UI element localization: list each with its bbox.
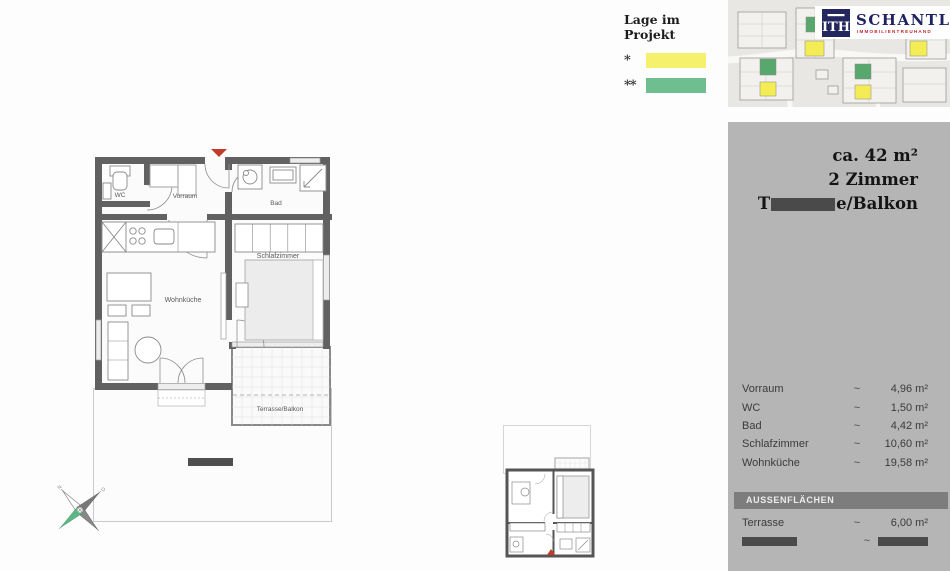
approx-sign: ~	[848, 457, 866, 469]
garden-door-steps	[158, 390, 205, 406]
room-label: Bad	[742, 420, 848, 432]
green-unit-2	[760, 59, 776, 75]
apartment-area-total: ca. 42 m²	[758, 144, 918, 168]
logo-monogram-bar	[828, 14, 845, 16]
round-table	[135, 337, 161, 363]
main-floor-plan: Terrasse/Balkon	[80, 145, 340, 530]
bathroom-sink-basin	[273, 170, 293, 180]
mini-bed-headboard	[557, 476, 563, 518]
table-row: Bad ~ 4,42 m²	[728, 417, 950, 435]
apartment-outdoor-title: T e/Balkon	[758, 192, 918, 216]
room-value: 10,60 m²	[866, 438, 928, 450]
entrance-arrow-icon	[211, 149, 227, 157]
room-value: 1,50 m²	[866, 402, 928, 414]
mini-wardrobe-row	[557, 523, 590, 532]
brand-name: SCHANTL	[856, 11, 950, 29]
bathroom-label: Bad	[270, 200, 282, 207]
yellow-unit-4	[855, 85, 871, 99]
room-label: Terrasse	[742, 517, 848, 529]
nightstand	[236, 283, 248, 307]
hallway-label: Vorraum	[173, 193, 198, 200]
bedroom-wardrobe	[235, 224, 323, 252]
yellow-unit-3	[760, 82, 776, 96]
wc-label: WC	[115, 192, 126, 199]
table-row: WC ~ 1,50 m²	[728, 398, 950, 416]
redacted-plan-caption	[188, 458, 233, 466]
redaction-block	[771, 198, 835, 211]
approx-sign: ~	[848, 420, 866, 432]
legend-item-double-star: **	[624, 78, 728, 93]
wc-sink	[103, 183, 111, 199]
legend-star-mark: *	[624, 53, 646, 68]
outdoor-title-suffix: e/Balkon	[836, 192, 918, 216]
approx-sign: ~	[848, 402, 866, 414]
burner-icon	[139, 228, 145, 234]
terrace-label: Terrasse/Balkon	[257, 406, 304, 413]
room-value: 4,96 m²	[866, 383, 928, 395]
kitchen-sink-icon	[154, 229, 174, 244]
apartment-details-panel: ca. 42 m² 2 Zimmer T e/Balkon Vorraum ~ …	[728, 122, 950, 571]
room-value: 4,42 m²	[866, 420, 928, 432]
mini-toilet-icon	[513, 541, 519, 547]
toilet-icon	[113, 172, 127, 190]
bed-headboard	[313, 260, 323, 340]
chair	[108, 305, 126, 316]
approx-sign: ~	[848, 438, 866, 450]
living-room-label: Wohnküche	[165, 297, 202, 304]
mini-sink	[560, 539, 572, 549]
burner-icon	[130, 238, 136, 244]
outdoor-title-prefix: T	[758, 192, 770, 216]
redaction-block	[878, 537, 928, 546]
burner-icon	[130, 228, 136, 234]
compass-letter-o: O	[100, 486, 107, 493]
table-row: Terrasse ~ 6,00 m²	[728, 514, 950, 532]
apartment-title-block: ca. 42 m² 2 Zimmer T e/Balkon	[758, 144, 918, 216]
project-location-legend: Lage im Projekt * **	[624, 12, 728, 103]
outdoor-area-table: Terrasse ~ 6,00 m²	[728, 514, 950, 532]
bedroom-terrace-window-wall	[232, 342, 323, 347]
approx-sign: ~	[858, 535, 876, 547]
terrace-area: Terrasse/Balkon	[232, 347, 330, 425]
brand-logo: ITH SCHANTL IMMOBILIENTREUHAND	[815, 6, 950, 39]
dining-table	[107, 273, 151, 301]
site-plan-thumbnail: ITH SCHANTL IMMOBILIENTREUHAND	[728, 0, 950, 107]
compass-rose: N O	[46, 476, 114, 544]
legend-green-swatch	[646, 78, 706, 93]
yellow-unit-2	[910, 41, 927, 56]
bed	[245, 260, 323, 340]
burner-icon	[139, 238, 145, 244]
room-value: 19,58 m²	[866, 457, 928, 469]
approx-sign: ~	[848, 517, 866, 529]
floorplan-document-page: Lage im Projekt * **	[0, 0, 950, 571]
room-area-table: Vorraum ~ 4,96 m² WC ~ 1,50 m² Bad ~ 4,4…	[728, 380, 950, 472]
open-door-leaf	[221, 273, 226, 339]
legend-yellow-swatch	[646, 53, 706, 68]
room-label: Schlafzimmer	[742, 438, 848, 450]
table-row: Vorraum ~ 4,96 m²	[728, 380, 950, 398]
green-unit-3	[855, 64, 871, 79]
room-label: Wohnküche	[742, 457, 848, 469]
kitchen-counter	[102, 222, 215, 252]
apartment-rooms-count: 2 Zimmer	[758, 168, 918, 192]
legend-item-single-star: *	[624, 53, 728, 68]
mini-kitchen-row	[510, 523, 545, 531]
redacted-outdoor-row: ~	[728, 534, 950, 548]
room-label: WC	[742, 402, 848, 414]
table-row: Schlafzimmer ~ 10,60 m²	[728, 435, 950, 453]
mini-plan-thumbnail	[500, 422, 602, 564]
sideboard	[108, 322, 128, 380]
legend-double-star-mark: **	[624, 78, 646, 93]
washing-machine-dial-icon	[244, 171, 249, 176]
redaction-block	[742, 537, 797, 546]
bedroom-label: Schlafzimmer	[257, 253, 300, 260]
outdoor-areas-header: AUSSENFLÄCHEN	[734, 492, 948, 509]
room-label: Vorraum	[742, 383, 848, 395]
yellow-unit-1	[805, 41, 824, 56]
bedroom	[235, 224, 323, 340]
table-row: Wohnküche ~ 19,58 m²	[728, 454, 950, 472]
approx-sign: ~	[848, 383, 866, 395]
room-value: 6,00 m²	[866, 517, 928, 529]
brand-tagline: IMMOBILIENTREUHAND	[857, 29, 932, 34]
legend-title: Lage im Projekt	[624, 12, 728, 42]
chair	[132, 305, 150, 316]
logo-monogram-icon: ITH	[822, 20, 850, 35]
